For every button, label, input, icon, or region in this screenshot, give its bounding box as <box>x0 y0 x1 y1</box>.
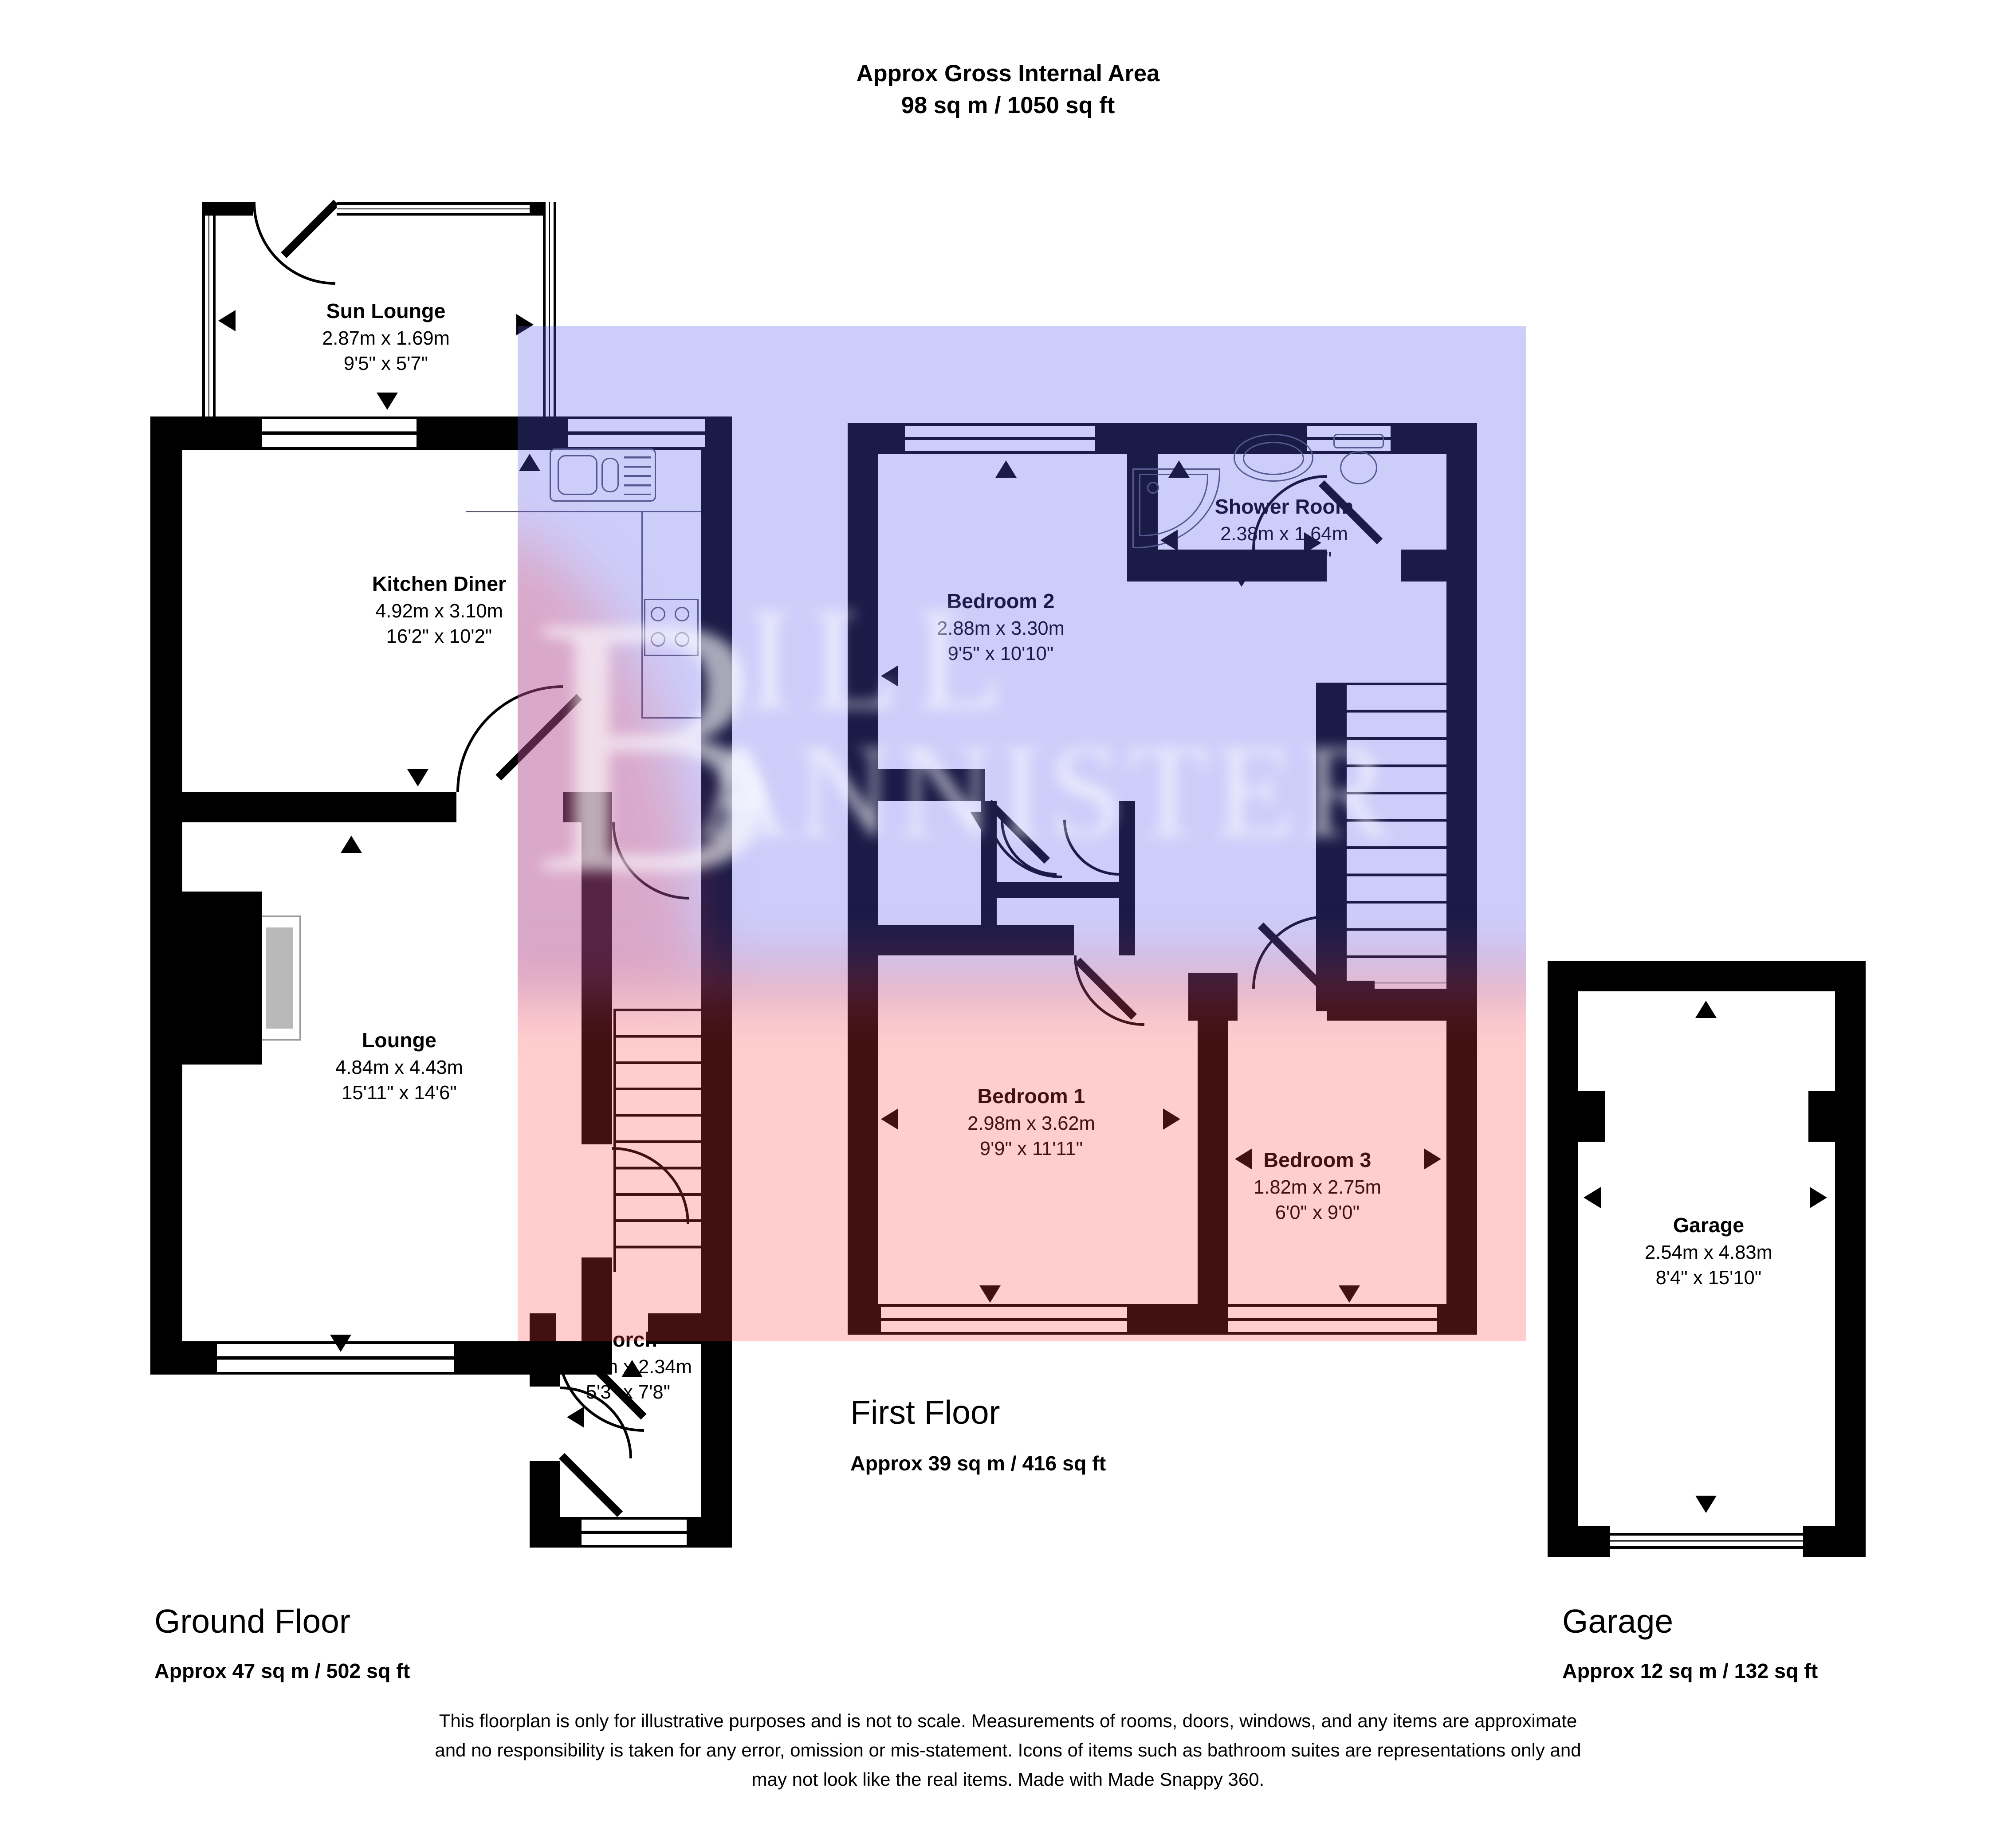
window <box>262 416 417 450</box>
stair-banister <box>613 1009 616 1272</box>
wall <box>1316 683 1347 1011</box>
toilet-icon <box>1333 434 1384 448</box>
wall <box>202 202 253 216</box>
title-line1: Approx Gross Internal Area <box>0 59 2016 90</box>
first-floor-caption: First Floor <box>850 1395 1000 1433</box>
wall <box>530 1517 582 1548</box>
window <box>337 202 530 216</box>
fireplace-icon <box>182 892 262 1065</box>
room-label-sun-lounge: Sun Lounge 2.87m x 1.69m 9'5" x 5'7" <box>322 299 450 379</box>
wall <box>1391 423 1477 454</box>
disclaimer-line2: and no responsibility is taken for any e… <box>0 1735 2016 1764</box>
floorplan-canvas: Approx Gross Internal Area 98 sq m / 105… <box>0 0 2016 1823</box>
direction-arrow <box>341 836 362 853</box>
room-dim-imperial: 9'5" x 5'7" <box>322 353 450 379</box>
room-dim-metric: 4.92m x 3.10m <box>372 600 506 625</box>
garage-caption: Garage <box>1562 1603 1673 1642</box>
wall <box>1548 991 1578 1557</box>
direction-arrow <box>979 1285 1001 1303</box>
direction-arrow <box>567 1407 584 1428</box>
direction-arrow <box>157 1179 174 1200</box>
direction-arrow <box>516 314 534 335</box>
room-dim-imperial: 16'2" x 10'2" <box>372 626 506 652</box>
page-title: Approx Gross Internal Area 98 sq m / 105… <box>0 59 2016 122</box>
direction-arrow <box>1695 1001 1717 1018</box>
room-dim-metric: 2.87m x 1.69m <box>322 327 450 353</box>
wall <box>848 925 1074 955</box>
hob-icon <box>644 599 699 656</box>
room-label-garage: Garage 2.54m x 4.83m 8'4" x 15'10" <box>1645 1214 1772 1293</box>
wall <box>417 416 568 450</box>
direction-arrow <box>1163 1108 1180 1130</box>
room-dim-metric: 2.38m x 1.64m <box>1215 523 1354 548</box>
direction-arrow <box>881 665 898 687</box>
shower-drain <box>1147 482 1159 494</box>
room-label-bedroom2: Bedroom 2 2.88m x 3.30m 9'5" x 10'10" <box>937 589 1065 669</box>
direction-arrow <box>970 812 991 829</box>
direction-arrow <box>1810 1187 1827 1208</box>
window <box>905 423 1095 454</box>
wall <box>848 1304 881 1335</box>
room-dim-imperial: 5'3" x 7'8" <box>564 1382 692 1407</box>
kitchen-sink-icon <box>550 448 656 502</box>
direction-arrow <box>995 460 1017 478</box>
direction-arrow <box>715 530 732 551</box>
direction-arrow <box>407 769 428 786</box>
closet-door-arc <box>1063 820 1119 876</box>
disclaimer-line1: This floorplan is only for illustrative … <box>0 1706 2016 1735</box>
window <box>1228 1304 1437 1335</box>
ground-floor-area: Approx 47 sq m / 502 sq ft <box>154 1661 410 1685</box>
room-label-bedroom1: Bedroom 1 2.98m x 3.62m 9'9" x 11'11" <box>967 1084 1095 1164</box>
title-line2: 98 sq m / 1050 sq ft <box>0 90 2016 122</box>
wall <box>182 792 456 822</box>
door-leaf <box>559 1453 623 1517</box>
wall <box>701 450 732 1548</box>
hob-ring <box>675 632 689 647</box>
room-label-bedroom3: Bedroom 3 1.82m x 2.75m 6'0" x 9'0" <box>1254 1148 1381 1228</box>
room-dim-imperial: 9'5" x 10'10" <box>937 643 1065 669</box>
wall <box>1548 1526 1610 1557</box>
direction-arrow <box>1339 1285 1360 1303</box>
wall <box>1401 550 1446 581</box>
direction-arrow <box>1160 530 1178 551</box>
room-name: Porch <box>564 1328 692 1355</box>
room-dim-metric: 1.82m x 2.75m <box>1254 1176 1381 1202</box>
room-dim-imperial: 8'4" x 15'10" <box>1645 1267 1772 1293</box>
wall <box>705 416 732 450</box>
wall <box>150 1341 217 1375</box>
room-dim-metric: 2.98m x 3.62m <box>967 1112 1095 1138</box>
wall <box>1437 1304 1477 1335</box>
direction-arrow <box>881 1108 898 1130</box>
direction-arrow <box>519 454 540 471</box>
direction-arrow <box>705 1407 723 1428</box>
disclaimer: This floorplan is only for illustrative … <box>0 1706 2016 1794</box>
room-dim-metric: 2.54m x 4.83m <box>1645 1241 1772 1267</box>
room-name: Bedroom 1 <box>967 1084 1095 1112</box>
ground-floor-caption: Ground Floor <box>154 1603 350 1642</box>
room-dim-metric: 4.84m x 4.43m <box>335 1056 463 1082</box>
wall <box>1446 454 1477 1304</box>
wall <box>582 822 612 1144</box>
direction-arrow <box>1584 1187 1601 1208</box>
room-dim-imperial: 6'0" x 9'0" <box>1254 1202 1381 1228</box>
window <box>202 202 216 428</box>
room-label-kitchen: Kitchen Diner 4.92m x 3.10m 16'2" x 10'2… <box>372 572 506 652</box>
hob-ring <box>651 632 665 647</box>
direction-arrow <box>218 310 236 331</box>
room-dim-metric: 2.88m x 3.30m <box>937 617 1065 643</box>
room-dim-imperial: 15'11" x 14'6" <box>335 1082 463 1108</box>
sink-bowl <box>558 455 597 495</box>
closet-door-arc <box>1001 820 1057 876</box>
hob-ring <box>675 607 689 621</box>
room-name: Bedroom 3 <box>1254 1148 1381 1176</box>
wall <box>1803 1526 1866 1557</box>
room-name: Lounge <box>335 1029 463 1056</box>
room-dim-metric: 1.61m x 2.34m <box>564 1355 692 1381</box>
window <box>881 1304 1127 1335</box>
stairs <box>615 1009 701 1272</box>
wall <box>530 1344 560 1387</box>
direction-arrow <box>377 393 398 410</box>
wall <box>981 882 1135 898</box>
wall <box>878 769 985 801</box>
room-name: Shower Room <box>1215 495 1354 523</box>
direction-arrow <box>1424 1148 1441 1170</box>
wall <box>1548 961 1866 991</box>
wall-pier <box>1808 1091 1835 1142</box>
room-name: Bedroom 2 <box>937 589 1065 617</box>
room-label-shower-room: Shower Room 2.38m x 1.64m 7'10" x 5'5" <box>1215 495 1354 574</box>
door-arc <box>612 822 689 900</box>
room-dim-imperial: 9'9" x 11'11" <box>967 1138 1095 1164</box>
disclaimer-line3: may not look like the real items. Made w… <box>0 1765 2016 1794</box>
hob-ring <box>651 607 665 621</box>
room-name: Kitchen Diner <box>372 572 506 600</box>
direction-arrow <box>1235 1148 1252 1170</box>
direction-arrow <box>1695 1496 1717 1513</box>
room-label-porch: Porch 1.61m x 2.34m 5'3" x 7'8" <box>564 1328 692 1407</box>
wall <box>150 416 262 450</box>
toilet-bowl <box>1340 451 1377 484</box>
wall <box>150 450 182 1375</box>
wall <box>687 1517 732 1548</box>
wall <box>1127 1304 1228 1335</box>
direction-arrow <box>330 1335 351 1352</box>
wall <box>1198 1021 1228 1304</box>
window <box>543 202 556 428</box>
wall-pier <box>1578 1091 1605 1142</box>
direction-arrow <box>157 530 174 551</box>
direction-arrow <box>1168 460 1190 478</box>
basin-inner <box>1243 442 1304 475</box>
tv-icon <box>266 927 293 1029</box>
wall <box>848 454 878 1304</box>
wall <box>563 792 612 822</box>
first-floor-area: Approx 39 sq m / 416 sq ft <box>850 1453 1106 1477</box>
garage-door <box>1610 1533 1803 1549</box>
direction-arrow <box>1339 1002 1360 1019</box>
sink-bowl-small <box>601 458 619 492</box>
wall <box>1835 991 1866 1557</box>
wall <box>848 423 905 454</box>
room-name: Sun Lounge <box>322 299 450 327</box>
window <box>568 416 705 450</box>
sink-drainer <box>624 456 651 495</box>
wall <box>1119 801 1135 955</box>
wall <box>530 1313 556 1344</box>
room-label-lounge: Lounge 4.84m x 4.43m 15'11" x 14'6" <box>335 1029 463 1108</box>
garage-area: Approx 12 sq m / 132 sq ft <box>1562 1661 1818 1685</box>
room-dim-imperial: 7'10" x 5'5" <box>1215 549 1354 574</box>
wall <box>530 1461 560 1517</box>
room-name: Garage <box>1645 1214 1772 1241</box>
stairs <box>1347 683 1446 983</box>
wall <box>1188 973 1238 1021</box>
window <box>582 1517 687 1548</box>
